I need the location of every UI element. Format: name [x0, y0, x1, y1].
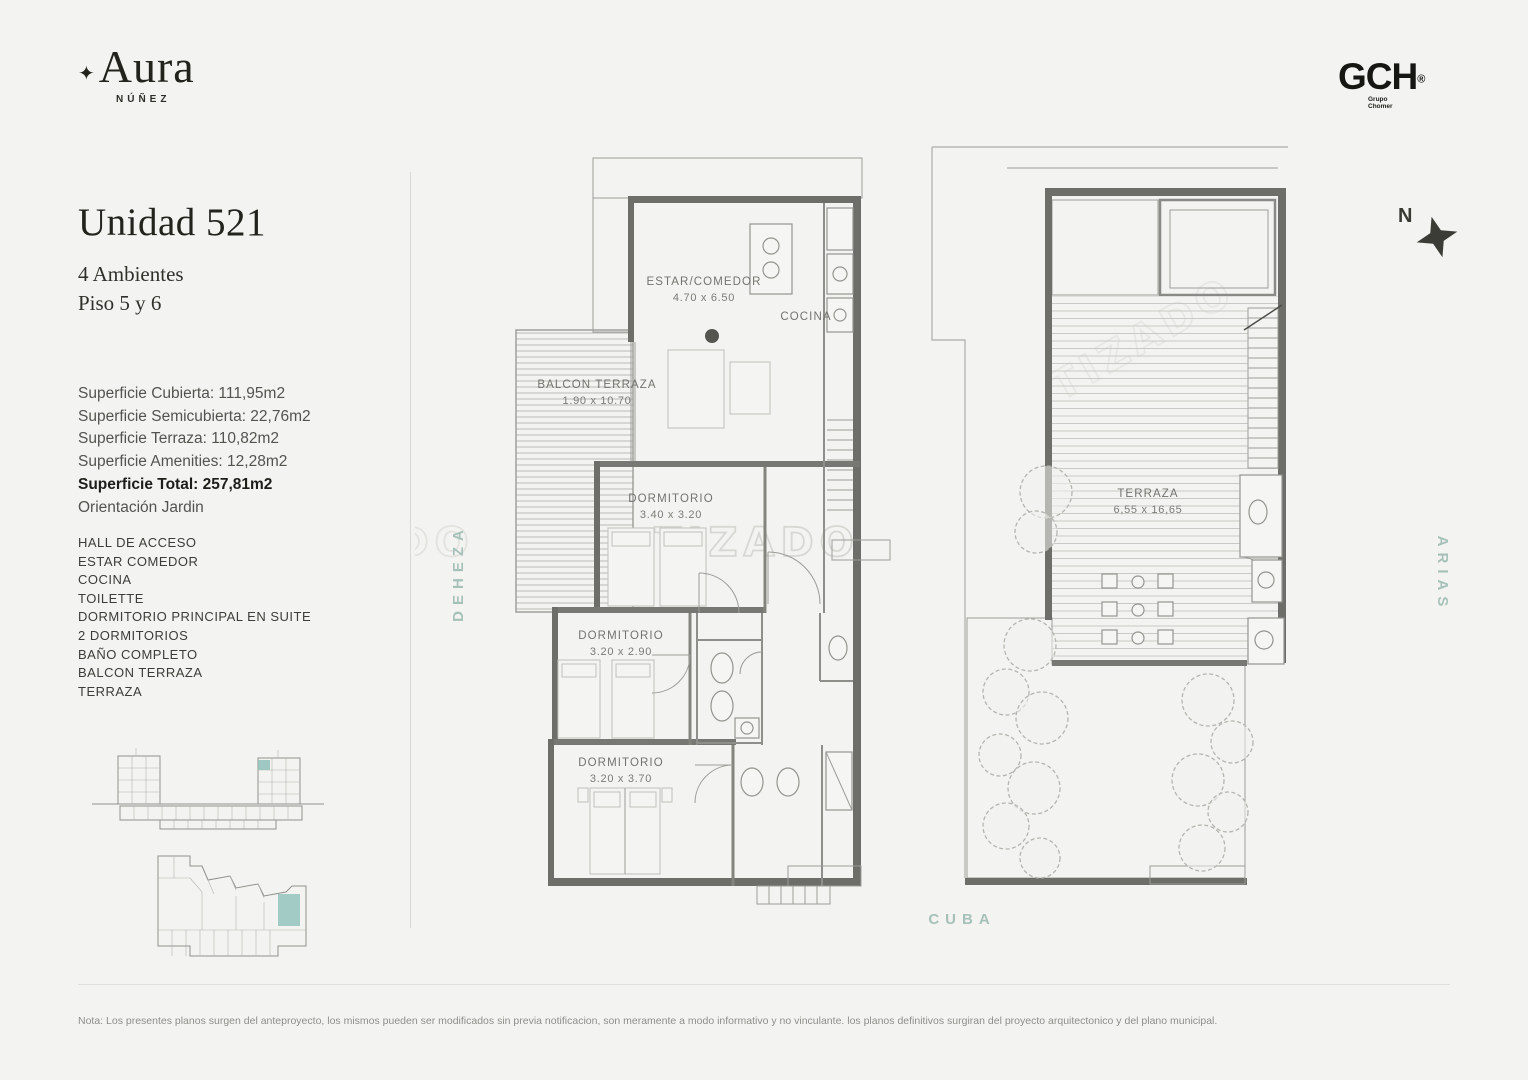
room-dims-dorm1: 3.40 x 3.20: [640, 509, 702, 521]
svg-text:N: N: [1398, 205, 1412, 227]
developer-sub2: Chomer: [1368, 103, 1425, 110]
developer-name: GCH: [1338, 56, 1417, 97]
floorplans: TIZADO TIZADO TIZADO: [415, 130, 1475, 960]
room-label-dorm2: DORMITORIO: [578, 630, 664, 642]
room-dims-terraza: 6,55 x 16,65: [1114, 504, 1183, 516]
column-dot: [705, 329, 719, 343]
feature-item: DORMITORIO PRINCIPAL EN SUITE: [78, 608, 311, 627]
gch-logo: GCH® Grupo Chomer: [1338, 58, 1425, 111]
registered-mark-icon: ®: [1417, 74, 1425, 86]
feature-item: TERRAZA: [78, 683, 311, 702]
surface-item: Superficie Amenities: 12,28m2: [78, 451, 311, 474]
unit-subtitle: 4 Ambientes Piso 5 y 6: [78, 260, 184, 318]
floorplan-sheet: ✦ Aura NÚÑEZ GCH® Grupo Chomer Unidad 52…: [0, 0, 1528, 1080]
feature-item: TOILETTE: [78, 590, 311, 609]
street-label-arias: ARIAS: [1434, 536, 1451, 613]
feature-item: BAÑO COMPLETO: [78, 646, 311, 665]
floors: Piso 5 y 6: [78, 289, 184, 318]
room-dims-balcon: 1.90 x 10.70: [563, 395, 632, 407]
unit-highlight-siteplan: [278, 894, 300, 926]
footer-note: Nota: Los presentes planos surgen del an…: [78, 1015, 1498, 1027]
footer-divider: [78, 984, 1450, 985]
room-dims-estar: 4.70 x 6.50: [673, 292, 735, 304]
feature-list: HALL DE ACCESO ESTAR COMEDOR COCINA TOIL…: [78, 534, 311, 701]
brand-name: Aura: [99, 44, 195, 90]
room-label-estar: ESTAR/COMEDOR: [646, 276, 761, 288]
feature-item: BALCON TERRAZA: [78, 664, 311, 683]
rooms-count: 4 Ambientes: [78, 260, 184, 289]
unit-highlight-elevation: [258, 760, 270, 770]
surface-item: Superficie Terraza: 110,82m2: [78, 428, 311, 451]
street-label-cuba: CUBA: [928, 911, 995, 928]
north-compass-icon: N: [1398, 205, 1463, 263]
room-label-balcon: BALCON TERRAZA: [537, 379, 656, 391]
street-label-deheza: DEHEZA: [450, 524, 467, 622]
room-label-dorm3: DORMITORIO: [578, 757, 664, 769]
surface-item: Superficie Cubierta: 111,95m2: [78, 383, 311, 406]
room-dims-dorm3: 3.20 x 3.70: [590, 773, 652, 785]
surface-total: Superficie Total: 257,81m2: [78, 474, 311, 497]
diamond-star-icon: ✦: [78, 61, 95, 86]
vertical-divider: [410, 172, 411, 928]
brand-subtitle: NÚÑEZ: [116, 94, 195, 105]
aura-logo: ✦ Aura NÚÑEZ: [78, 44, 195, 105]
building-elevation-diagram: [88, 742, 328, 837]
feature-item: HALL DE ACCESO: [78, 534, 311, 553]
developer-sub1: Grupo: [1368, 96, 1425, 103]
site-key-diagram: [138, 850, 318, 965]
feature-item: COCINA: [78, 571, 311, 590]
feature-item: ESTAR COMEDOR: [78, 553, 311, 572]
room-dims-dorm2: 3.20 x 2.90: [590, 646, 652, 658]
room-label-dorm1: DORMITORIO: [628, 493, 714, 505]
room-label-terraza: TERRAZA: [1117, 488, 1178, 500]
room-label-cocina: COCINA: [780, 311, 831, 323]
feature-item: 2 DORMITORIOS: [78, 627, 311, 646]
plan-floor6: TERRAZA 6,55 x 16,65: [932, 147, 1288, 885]
orientation: Orientación Jardin: [78, 497, 311, 520]
surface-list: Superficie Cubierta: 111,95m2 Superficie…: [78, 383, 311, 519]
page-title: Unidad 521: [78, 200, 266, 245]
surface-item: Superficie Semicubierta: 22,76m2: [78, 406, 311, 429]
